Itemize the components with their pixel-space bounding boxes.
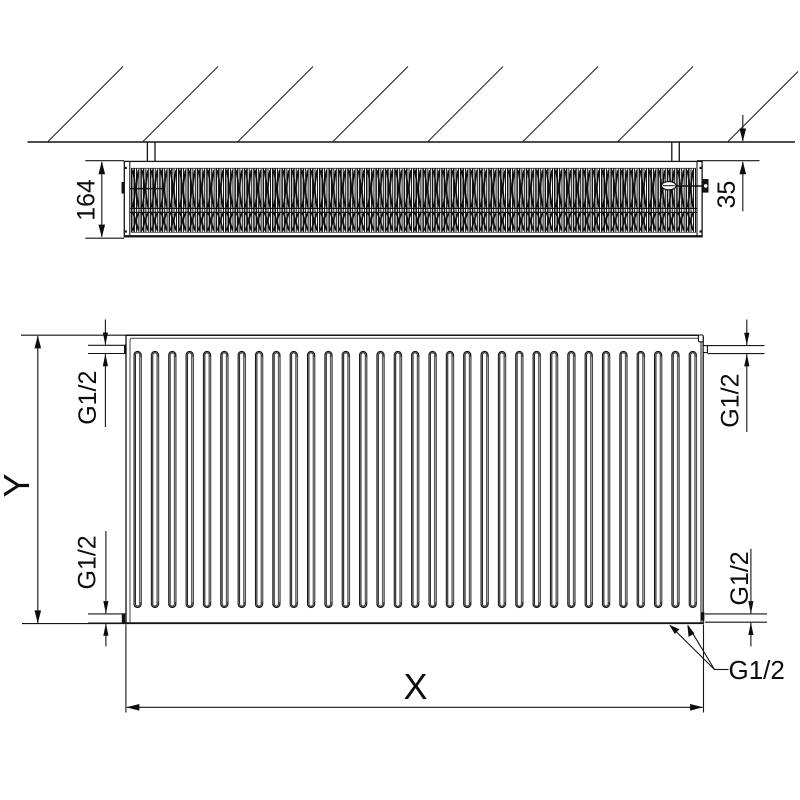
svg-text:G1/2: G1/2 [726, 551, 754, 605]
svg-text:164: 164 [73, 179, 101, 221]
svg-text:G1/2: G1/2 [74, 535, 102, 589]
svg-text:G1/2: G1/2 [717, 373, 745, 427]
svg-text:X: X [404, 666, 428, 707]
svg-text:35: 35 [713, 181, 741, 209]
svg-text:G1/2: G1/2 [74, 371, 102, 425]
svg-text:G1/2: G1/2 [729, 655, 785, 685]
svg-text:Y: Y [0, 473, 37, 497]
